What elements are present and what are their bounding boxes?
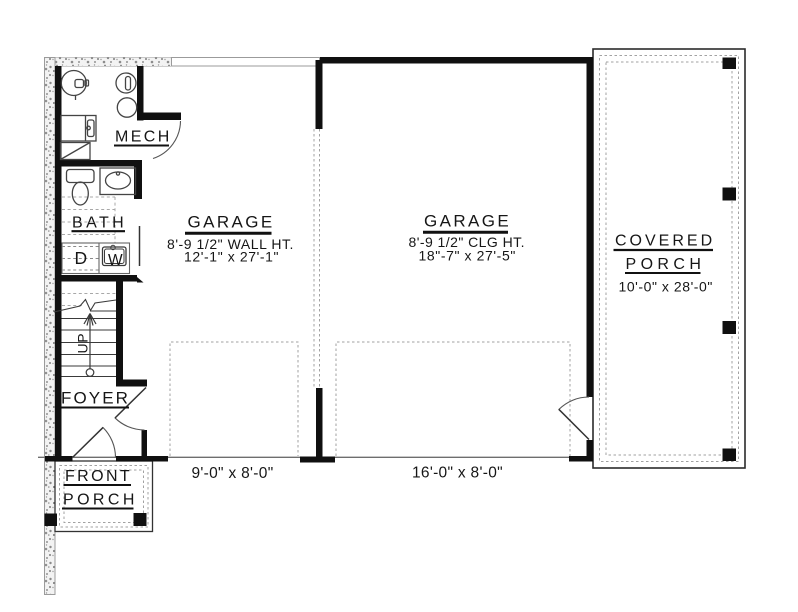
svg-text:PORCH: PORCH <box>626 256 706 273</box>
svg-text:MECH: MECH <box>115 129 172 146</box>
svg-text:GARAGE: GARAGE <box>188 213 275 232</box>
svg-text:BATH: BATH <box>72 215 127 232</box>
svg-text:GARAGE: GARAGE <box>424 212 511 231</box>
svg-text:12'-1" x 27'-1": 12'-1" x 27'-1" <box>184 249 279 265</box>
svg-text:COVERED: COVERED <box>615 233 715 250</box>
svg-text:10'-0" x 28'-0": 10'-0" x 28'-0" <box>619 279 713 295</box>
svg-text:FRONT: FRONT <box>65 468 132 485</box>
svg-text:PORCH: PORCH <box>63 492 138 509</box>
svg-text:FOYER: FOYER <box>61 389 130 408</box>
svg-text:9'-0" x 8'-0": 9'-0" x 8'-0" <box>192 465 274 482</box>
svg-text:D: D <box>75 248 88 268</box>
svg-text:18"-7" x 27'-5": 18"-7" x 27'-5" <box>419 248 516 264</box>
svg-text:W: W <box>108 252 123 269</box>
svg-text:16'-0" x 8'-0": 16'-0" x 8'-0" <box>412 465 503 482</box>
svg-text:UP: UP <box>75 333 91 354</box>
